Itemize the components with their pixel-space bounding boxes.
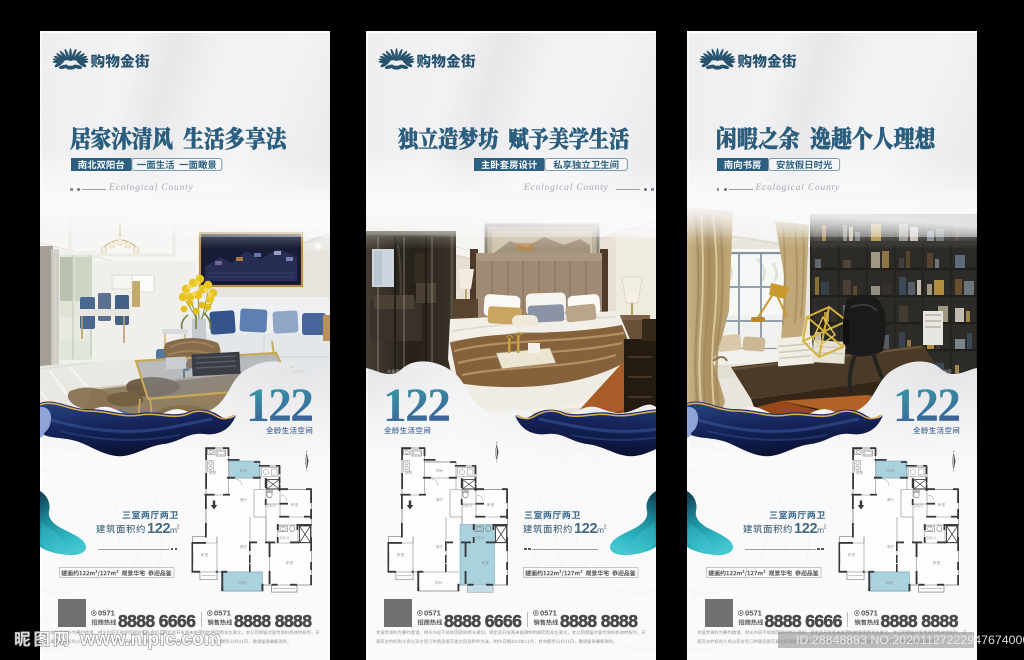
svg-text:2: 2 — [823, 525, 826, 531]
svg-text:0571: 0571 — [745, 609, 763, 617]
svg-text:2: 2 — [177, 525, 180, 531]
svg-text:0571: 0571 — [861, 609, 879, 617]
svg-text:122: 122 — [794, 521, 818, 537]
svg-text:2: 2 — [604, 525, 607, 531]
svg-text:0571: 0571 — [540, 609, 558, 617]
svg-text:122: 122 — [147, 521, 171, 537]
svg-text:122: 122 — [246, 383, 312, 425]
svg-text:122: 122 — [574, 521, 598, 537]
svg-text:122: 122 — [893, 383, 959, 425]
svg-text:www.nipic.com: www.nipic.com — [79, 628, 221, 650]
svg-text:0571: 0571 — [424, 609, 442, 617]
svg-text:122: 122 — [383, 383, 449, 425]
